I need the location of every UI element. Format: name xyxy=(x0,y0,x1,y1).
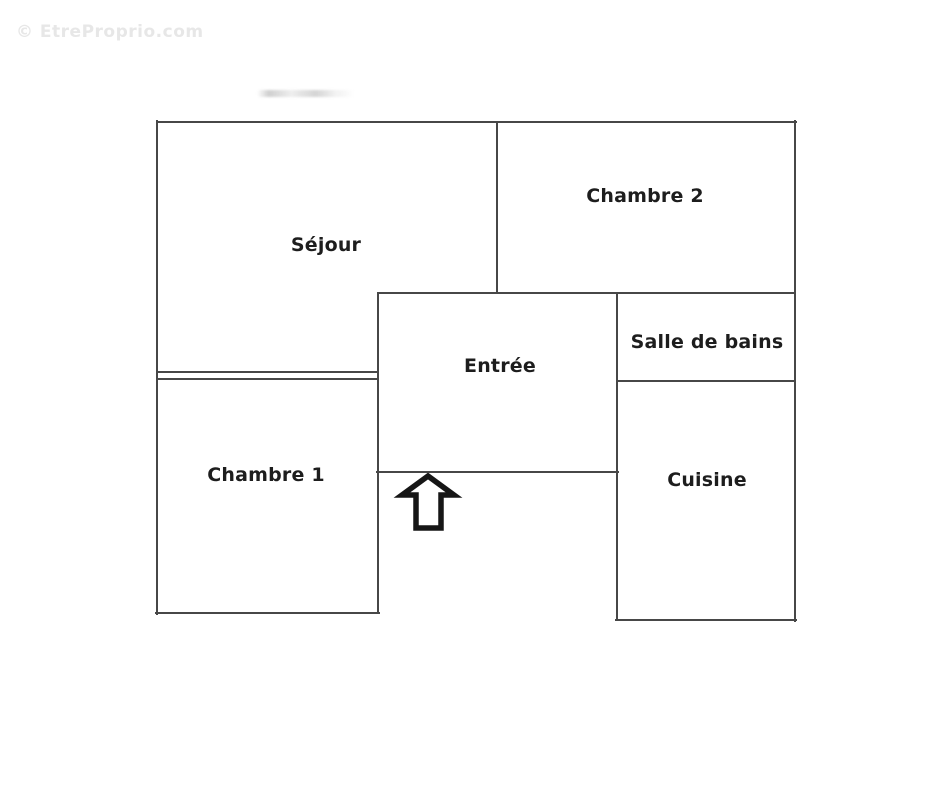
room-label-cuisine: Cuisine xyxy=(667,469,747,491)
room-label-salle-de-bains: Salle de bains xyxy=(631,331,784,353)
up-arrow-icon xyxy=(402,476,454,528)
floor-plan-drawing xyxy=(0,0,946,800)
room-label-entree: Entrée xyxy=(464,355,536,377)
room-label-chambre1: Chambre 1 xyxy=(207,464,325,486)
room-label-sejour: Séjour xyxy=(291,234,361,256)
floor-plan-page: © EtreProprio.com Séjour Chambre 2 Entré… xyxy=(0,0,946,800)
room-label-chambre2: Chambre 2 xyxy=(586,185,704,207)
